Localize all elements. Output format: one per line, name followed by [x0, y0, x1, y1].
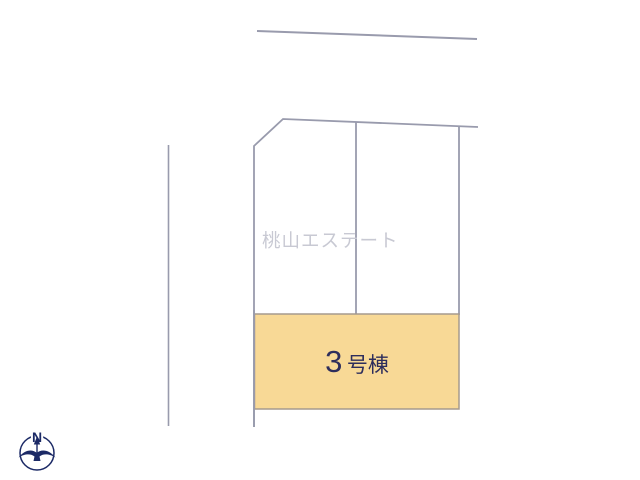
lot-3-label-number: 3	[325, 344, 342, 379]
road-edge-line-top	[257, 31, 477, 39]
site-plan-canvas: 桃山エステート 3 号棟 N	[0, 0, 640, 480]
north-compass-icon: N	[19, 429, 56, 470]
watermark-text: 桃山エステート	[262, 230, 399, 251]
site-plan-drawing: 桃山エステート 3 号棟 N	[0, 0, 640, 480]
lot-3-label-suffix: 号棟	[347, 354, 389, 377]
